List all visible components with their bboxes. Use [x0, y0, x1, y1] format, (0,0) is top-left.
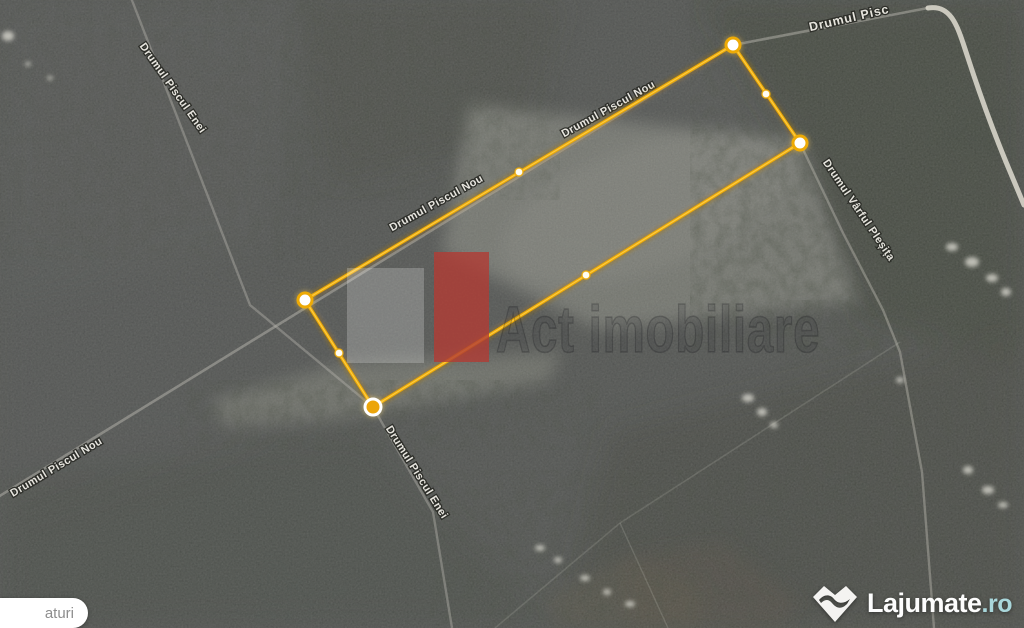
- lajumate-logo-icon: [810, 583, 860, 623]
- logo-tld-text: .ro: [982, 590, 1012, 618]
- watermark-text: Act imobiliare: [496, 293, 820, 366]
- parcel-vertex[interactable]: [726, 38, 740, 52]
- lajumate-logo: Lajumate.ro: [810, 583, 1012, 623]
- parcel-vertex[interactable]: [793, 136, 807, 150]
- layers-button[interactable]: aturi: [0, 598, 88, 628]
- parcel-vertex[interactable]: [298, 293, 312, 307]
- logo-main-text: Lajumate: [867, 588, 982, 618]
- parcel-midpoint-handle[interactable]: [582, 271, 590, 279]
- parcel-midpoint-handle[interactable]: [762, 90, 770, 98]
- layers-button-label: aturi: [45, 605, 74, 622]
- watermark-red-block: [434, 252, 489, 362]
- watermark-gray-block: [347, 268, 424, 363]
- parcel-midpoint-handle[interactable]: [515, 168, 523, 176]
- parcel-midpoint-handle[interactable]: [335, 349, 343, 357]
- parcel-vertex-selected[interactable]: [365, 399, 381, 415]
- logo-wordmark: Lajumate.ro: [867, 590, 1012, 617]
- map-canvas[interactable]: Drumul Pisc Drumul Piscul Nou Drumul Pis…: [0, 0, 1024, 628]
- satellite-map[interactable]: Drumul Pisc Drumul Piscul Nou Drumul Pis…: [0, 0, 1024, 628]
